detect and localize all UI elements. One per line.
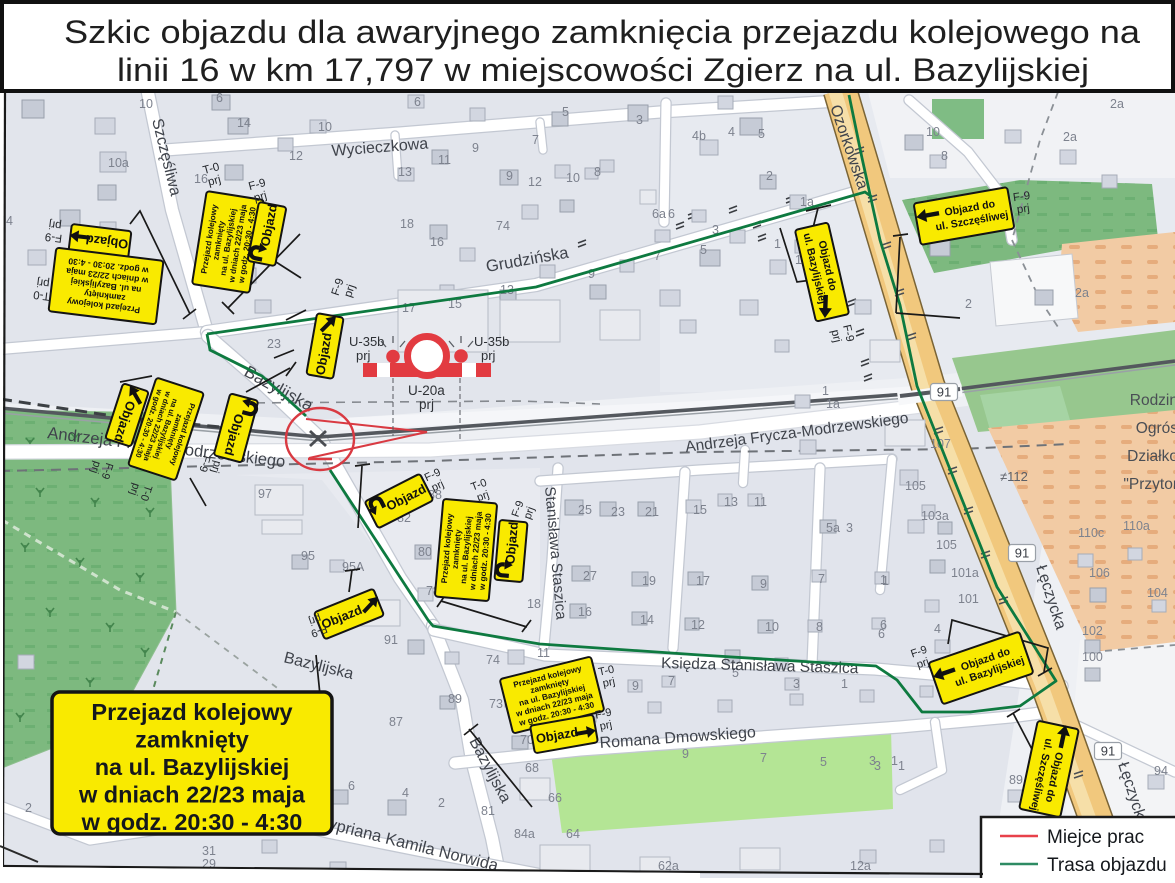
svg-text:106: 106 xyxy=(1089,566,1110,580)
svg-text:9: 9 xyxy=(760,577,767,591)
svg-text:101: 101 xyxy=(958,592,979,606)
svg-text:8: 8 xyxy=(941,149,948,163)
svg-text:89: 89 xyxy=(1009,773,1023,787)
svg-text:91: 91 xyxy=(1101,744,1115,759)
svg-text:na ul. Bazylijskiej: na ul. Bazylijskiej xyxy=(95,754,290,780)
svg-text:7: 7 xyxy=(760,751,767,765)
svg-text:Rodzin: Rodzin xyxy=(1130,392,1175,409)
svg-text:10a: 10a xyxy=(108,156,129,170)
svg-text:5a: 5a xyxy=(826,521,840,535)
svg-text:19: 19 xyxy=(642,574,656,588)
svg-text:1a: 1a xyxy=(826,397,840,411)
svg-text:6: 6 xyxy=(878,627,885,641)
svg-text:74: 74 xyxy=(496,219,510,233)
svg-text:zamknięty: zamknięty xyxy=(135,727,249,753)
svg-text:110c: 110c xyxy=(1078,526,1104,540)
svg-text:prj: prj xyxy=(481,348,496,363)
svg-text:Działko: Działko xyxy=(1127,448,1175,465)
svg-text:25: 25 xyxy=(578,503,592,517)
svg-text:prj: prj xyxy=(1016,203,1030,217)
svg-text:1: 1 xyxy=(841,677,848,691)
svg-text:"Przytor: "Przytor xyxy=(1123,476,1175,493)
svg-text:w godz. 20:30 - 4:30: w godz. 20:30 - 4:30 xyxy=(81,809,303,835)
svg-text:87: 87 xyxy=(389,715,403,729)
svg-text:1: 1 xyxy=(880,573,887,587)
svg-text:100: 100 xyxy=(1082,650,1103,664)
svg-text:4: 4 xyxy=(402,786,409,800)
svg-text:14: 14 xyxy=(640,613,654,627)
svg-text:7: 7 xyxy=(818,572,825,586)
svg-text:16: 16 xyxy=(430,235,444,249)
svg-text:23: 23 xyxy=(611,505,625,519)
svg-text:prj: prj xyxy=(599,719,613,733)
svg-text:2a: 2a xyxy=(1063,130,1077,144)
svg-text:11: 11 xyxy=(754,495,767,509)
svg-text:13: 13 xyxy=(724,495,738,509)
svg-text:6: 6 xyxy=(414,95,421,109)
svg-text:w dniach 22/23 maja: w dniach 22/23 maja xyxy=(78,782,306,808)
svg-text:89: 89 xyxy=(448,692,462,706)
svg-text:2a: 2a xyxy=(1075,286,1089,300)
svg-text:3: 3 xyxy=(793,677,800,691)
svg-text:74: 74 xyxy=(486,653,500,667)
svg-text:Ogrós: Ogrós xyxy=(1136,420,1175,437)
svg-text:2a: 2a xyxy=(1110,97,1124,111)
svg-text:31: 31 xyxy=(202,844,216,858)
svg-text:2: 2 xyxy=(438,796,445,810)
svg-text:Przejazd kolejowy: Przejazd kolejowy xyxy=(91,699,292,725)
svg-text:95: 95 xyxy=(301,549,315,563)
svg-text:68: 68 xyxy=(525,761,539,775)
svg-text:prj: prj xyxy=(419,397,434,412)
svg-text:4: 4 xyxy=(6,214,13,228)
svg-text:5: 5 xyxy=(700,243,707,257)
svg-text:11: 11 xyxy=(537,646,550,660)
svg-text:102: 102 xyxy=(1082,624,1103,638)
svg-text:91: 91 xyxy=(384,633,398,647)
svg-text:10: 10 xyxy=(318,120,332,134)
svg-text:8: 8 xyxy=(816,620,823,634)
svg-text:84a: 84a xyxy=(514,827,535,841)
svg-text:6: 6 xyxy=(668,207,675,221)
svg-text:10: 10 xyxy=(139,97,153,111)
svg-text:prj: prj xyxy=(36,276,50,289)
svg-text:8: 8 xyxy=(594,165,601,179)
svg-text:9: 9 xyxy=(472,141,479,155)
svg-text:23: 23 xyxy=(267,337,281,351)
svg-text:11: 11 xyxy=(438,153,451,167)
svg-text:prj: prj xyxy=(48,218,62,231)
svg-text:9: 9 xyxy=(682,747,689,761)
svg-text:1: 1 xyxy=(898,759,905,773)
svg-text:64: 64 xyxy=(566,827,580,841)
svg-text:5: 5 xyxy=(758,127,765,141)
svg-text:1: 1 xyxy=(891,754,898,768)
svg-text:7: 7 xyxy=(532,133,539,147)
svg-text:101a: 101a xyxy=(951,566,979,580)
svg-text:104: 104 xyxy=(1147,586,1168,600)
svg-text:Miejce prac: Miejce prac xyxy=(1047,827,1144,848)
svg-text:10: 10 xyxy=(765,620,779,634)
svg-text:66: 66 xyxy=(548,791,562,805)
svg-text:prj: prj xyxy=(602,676,616,690)
svg-text:Trasa objazdu: Trasa objazdu xyxy=(1047,855,1167,876)
svg-text:5: 5 xyxy=(562,105,569,119)
svg-text:prj: prj xyxy=(356,348,371,363)
svg-text:9: 9 xyxy=(632,679,639,693)
svg-text:≠112: ≠112 xyxy=(1000,469,1028,484)
svg-text:94: 94 xyxy=(1154,764,1168,778)
svg-text:1: 1 xyxy=(822,384,829,398)
svg-text:6: 6 xyxy=(348,779,355,793)
svg-text:91: 91 xyxy=(937,385,951,400)
svg-text:6a: 6a xyxy=(652,207,666,221)
svg-text:97: 97 xyxy=(258,487,272,501)
svg-text:2: 2 xyxy=(766,169,773,183)
svg-text:U-35b: U-35b xyxy=(474,334,509,349)
svg-text:17: 17 xyxy=(696,574,710,588)
svg-text:16: 16 xyxy=(578,605,592,619)
svg-text:9: 9 xyxy=(506,169,513,183)
svg-text:U-35b: U-35b xyxy=(349,334,384,349)
svg-text:3: 3 xyxy=(869,754,876,768)
svg-text:4b: 4b xyxy=(692,129,706,143)
svg-text:95A: 95A xyxy=(342,560,365,574)
svg-text:15: 15 xyxy=(693,503,707,517)
svg-text:13: 13 xyxy=(398,165,412,179)
svg-text:4: 4 xyxy=(728,125,735,139)
svg-text:12a: 12a xyxy=(850,859,871,873)
svg-text:110a: 110a xyxy=(1123,519,1150,533)
svg-text:27: 27 xyxy=(583,569,597,583)
svg-text:73: 73 xyxy=(489,697,503,711)
svg-text:1: 1 xyxy=(774,237,781,251)
svg-text:12: 12 xyxy=(691,618,705,632)
svg-text:10: 10 xyxy=(566,171,580,185)
svg-text:2: 2 xyxy=(965,297,972,311)
svg-text:14: 14 xyxy=(237,116,251,130)
svg-text:3: 3 xyxy=(636,113,643,127)
svg-text:105: 105 xyxy=(936,538,957,552)
svg-text:2: 2 xyxy=(25,801,32,815)
svg-text:4: 4 xyxy=(934,622,941,636)
svg-text:80: 80 xyxy=(418,545,432,559)
svg-text:10: 10 xyxy=(926,125,940,139)
svg-text:linii 16 w km 17,797 w miejsco: linii 16 w km 17,797 w miejscowości Zgie… xyxy=(117,52,1089,88)
svg-text:U-20a: U-20a xyxy=(408,383,445,398)
svg-text:12: 12 xyxy=(528,175,542,189)
svg-text:105: 105 xyxy=(905,479,926,493)
svg-text:18: 18 xyxy=(527,597,541,611)
svg-text:Szkic objazdu dla awaryjnego z: Szkic objazdu dla awaryjnego zamknięcia … xyxy=(64,14,1140,50)
svg-text:81: 81 xyxy=(481,804,495,818)
svg-text:6: 6 xyxy=(216,91,223,105)
svg-text:21: 21 xyxy=(645,505,659,519)
svg-text:5: 5 xyxy=(820,755,827,769)
svg-text:7: 7 xyxy=(668,674,675,688)
svg-text:103a: 103a xyxy=(921,509,949,523)
svg-text:91: 91 xyxy=(1015,546,1029,561)
svg-text:3: 3 xyxy=(846,521,853,535)
svg-text:18: 18 xyxy=(400,217,414,231)
svg-text:12: 12 xyxy=(289,149,303,163)
